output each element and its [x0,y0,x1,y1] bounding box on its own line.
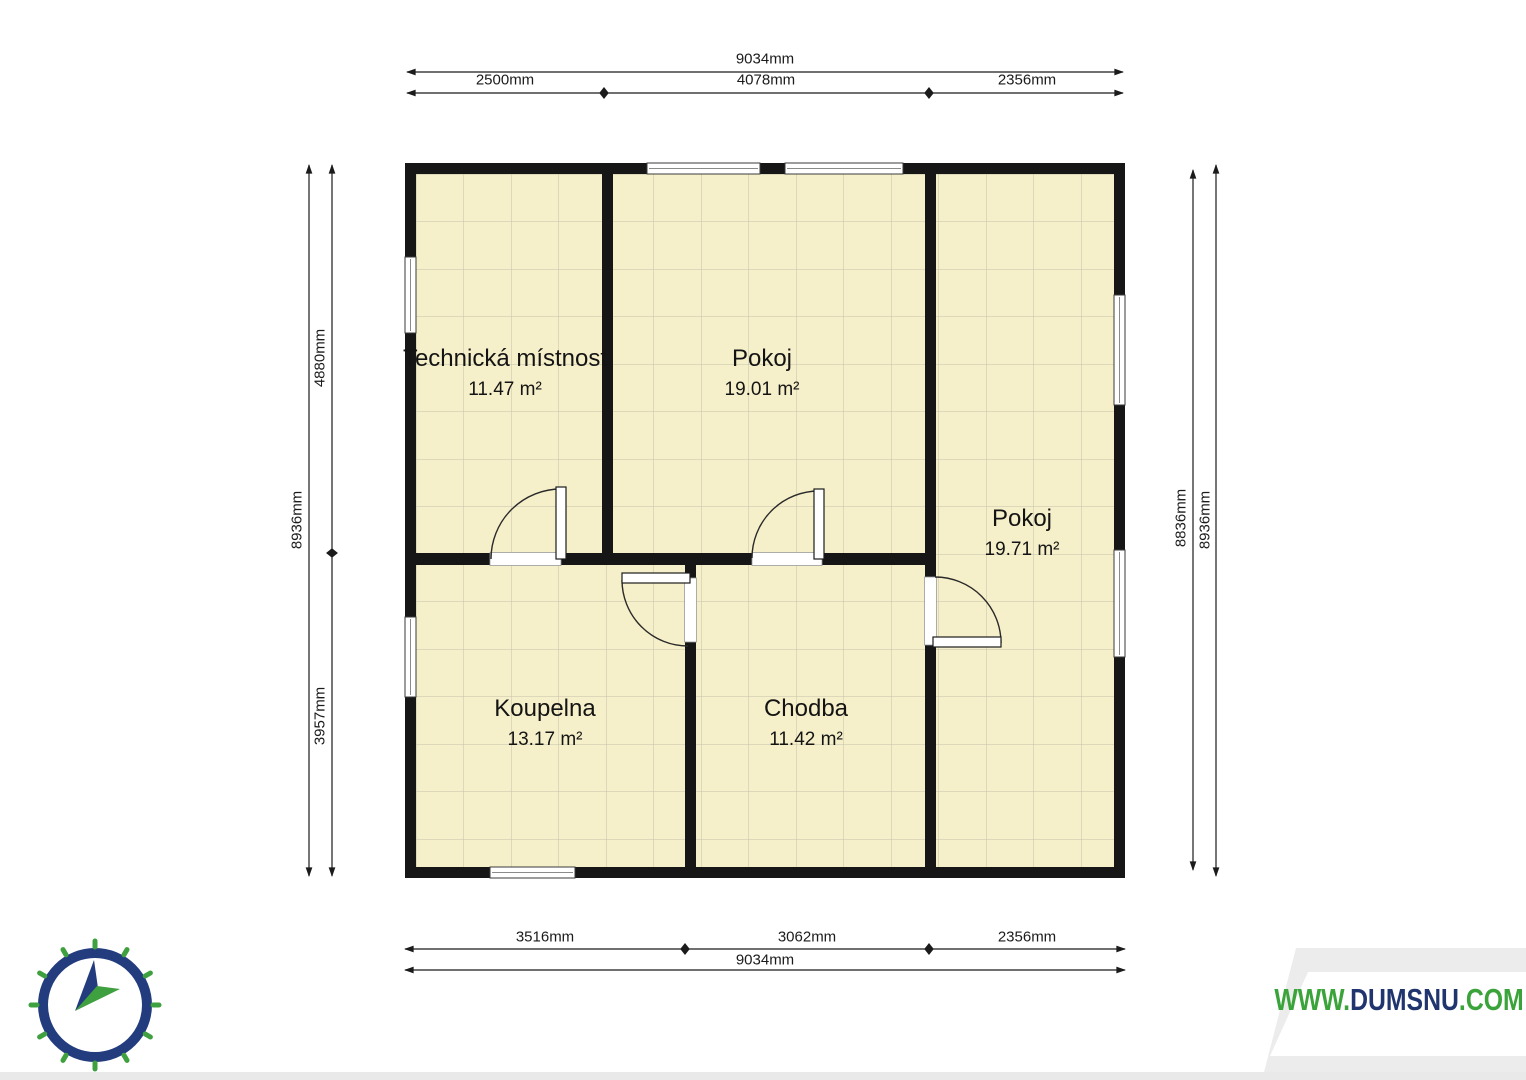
room-label: Chodba 11.42 m² [764,696,848,750]
room-name: Pokoj [985,506,1060,532]
dim-top-seg-3: 2356mm [998,72,1056,89]
watermark-com: .COM [1459,982,1524,1018]
room-area: 11.47 m² [403,379,607,400]
dim-top-seg-1: 2500mm [476,72,534,89]
room-area: 19.01 m² [725,379,800,400]
dim-bottom-seg-3: 2356mm [998,929,1056,946]
floor-plan-page: Technická místnost 11.47 m² Pokoj 19.01 … [0,0,1526,1080]
room-name: Chodba [764,696,848,722]
dim-bottom-seg-2: 3062mm [778,929,836,946]
room-label: Technická místnost 11.47 m² [403,346,607,400]
dim-bottom-total: 9034mm [736,952,794,969]
watermark-www: WWW. [1274,982,1350,1018]
room-label: Pokoj 19.71 m² [985,506,1060,560]
dim-bottom-seg-1: 3516mm [516,929,574,946]
room-area: 11.42 m² [764,729,848,750]
room-name: Koupelna [494,696,595,722]
compass-icon [31,941,159,1069]
watermark-domain: DUMSNU [1350,982,1459,1018]
dim-right-outer: 8936mm [1197,491,1214,549]
dim-top-seg-2: 4078mm [737,72,795,89]
dim-left-total: 8936mm [289,491,306,549]
bottom-strip [0,1072,1526,1080]
room-area: 13.17 m² [494,729,595,750]
room-area: 19.71 m² [985,539,1060,560]
dim-top-total: 9034mm [736,51,794,68]
room-label: Koupelna 13.17 m² [494,696,595,750]
dim-left-seg-1: 4880mm [312,329,329,387]
room-name: Technická místnost [403,346,607,372]
dim-left-seg-2: 3957mm [312,687,329,745]
floor-plan-drawing [0,0,1526,1080]
dim-right-inner: 8836mm [1173,489,1190,547]
watermark-url: WWW.DUMSNU.COM [1297,976,1500,1024]
room-label: Pokoj 19.01 m² [725,346,800,400]
room-name: Pokoj [725,346,800,372]
